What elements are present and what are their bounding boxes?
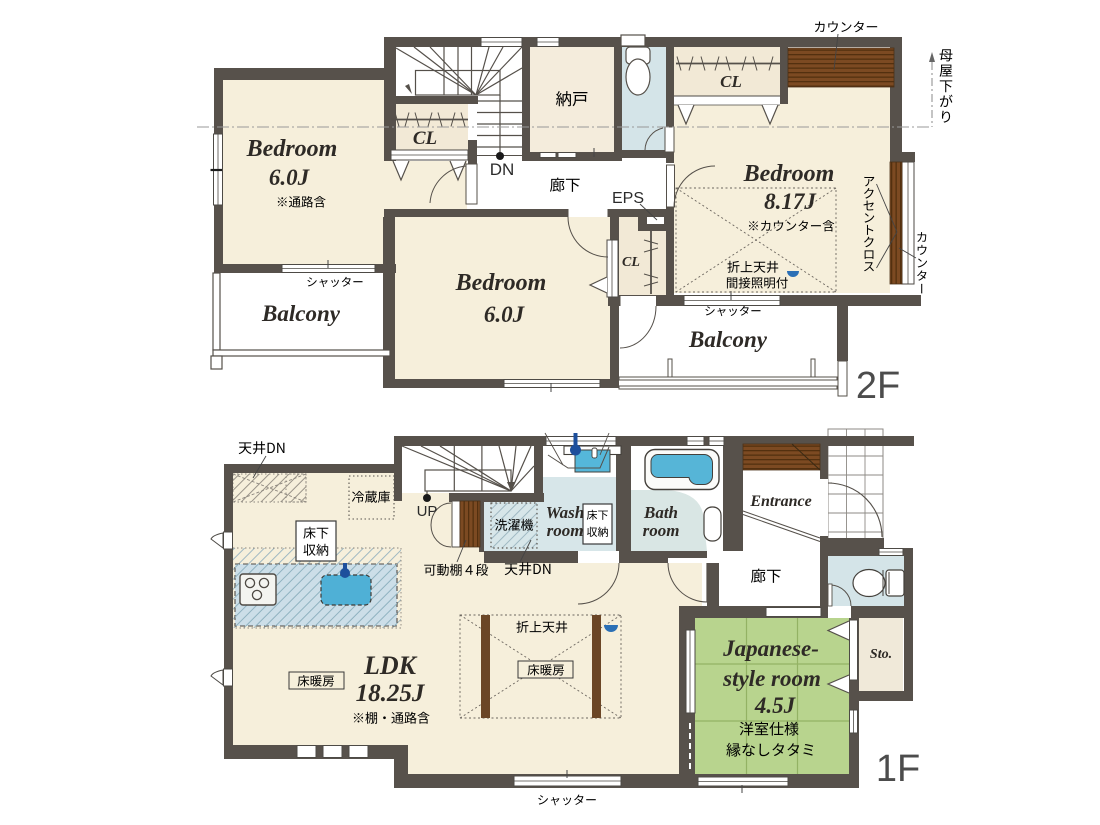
svg-text:style room: style room: [722, 666, 821, 691]
svg-text:18.25J: 18.25J: [356, 680, 426, 707]
svg-text:CL: CL: [413, 128, 437, 149]
svg-text:CL: CL: [622, 255, 640, 270]
svg-text:room: room: [643, 521, 680, 540]
svg-text:DN: DN: [490, 160, 515, 179]
svg-text:6.0J: 6.0J: [484, 302, 526, 327]
svg-text:8.17J: 8.17J: [764, 189, 817, 214]
svg-text:Japanese-: Japanese-: [722, 636, 819, 661]
svg-text:Bedroom: Bedroom: [246, 136, 338, 162]
svg-text:2F: 2F: [856, 365, 900, 407]
svg-text:Sto.: Sto.: [870, 647, 892, 662]
svg-text:Bedroom: Bedroom: [455, 270, 547, 296]
svg-text:1F: 1F: [876, 748, 920, 790]
svg-text:Balcony: Balcony: [261, 301, 341, 326]
svg-text:4.5J: 4.5J: [754, 693, 797, 718]
svg-text:CL: CL: [720, 72, 742, 91]
svg-text:LDK: LDK: [363, 651, 418, 680]
svg-text:Wash: Wash: [546, 503, 584, 522]
svg-text:6.0J: 6.0J: [269, 165, 311, 190]
svg-text:room: room: [547, 521, 584, 540]
svg-text:EPS: EPS: [612, 190, 644, 207]
svg-text:Bath: Bath: [643, 503, 678, 522]
svg-text:Entrance: Entrance: [749, 493, 811, 510]
svg-text:UP: UP: [417, 503, 438, 520]
svg-text:Bedroom: Bedroom: [743, 161, 835, 187]
svg-text:Balcony: Balcony: [688, 327, 768, 352]
